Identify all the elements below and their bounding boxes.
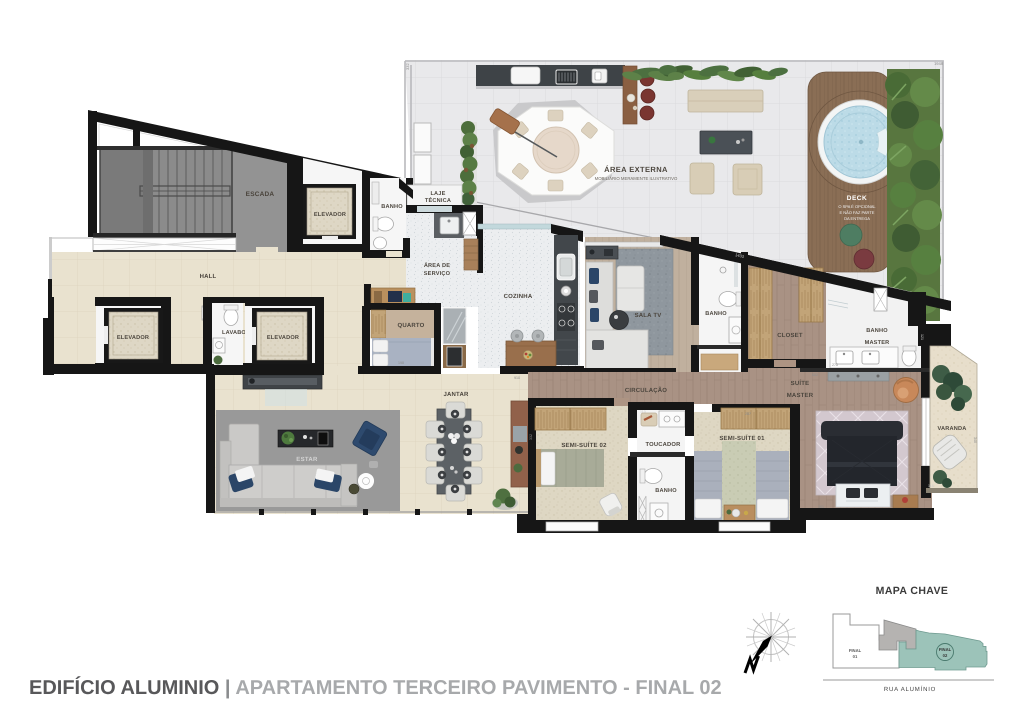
svg-text:602: 602 (812, 373, 818, 377)
svg-text:CLOSET: CLOSET (777, 332, 803, 339)
svg-text:LAVABO: LAVABO (222, 330, 246, 336)
svg-text:QUARTO: QUARTO (397, 322, 424, 329)
svg-text:332: 332 (529, 434, 533, 440)
svg-text:JANTAR: JANTAR (443, 391, 469, 398)
svg-text:ELEVADOR: ELEVADOR (117, 335, 149, 341)
svg-text:E NÃO FAZ PARTE: E NÃO FAZ PARTE (840, 210, 875, 215)
svg-text:SEMI-SUÍTE 01: SEMI-SUÍTE 01 (719, 434, 765, 442)
svg-text:ÁREA EXTERNA: ÁREA EXTERNA (604, 165, 668, 174)
svg-text:910: 910 (514, 376, 520, 380)
svg-text:FINAL: FINAL (849, 648, 862, 653)
svg-text:TÉCNICA: TÉCNICA (425, 197, 451, 204)
svg-text:ESTAR: ESTAR (296, 456, 318, 463)
svg-text:SUÍTE: SUÍTE (791, 379, 810, 387)
svg-text:RUA ALUMÍNIO: RUA ALUMÍNIO (884, 685, 936, 693)
svg-text:278: 278 (832, 363, 838, 367)
svg-text:MASTER: MASTER (787, 392, 814, 399)
svg-text:ELEVADOR: ELEVADOR (314, 212, 346, 218)
svg-text:198: 198 (398, 361, 404, 365)
svg-text:LAJE: LAJE (430, 191, 445, 197)
svg-text:DECK: DECK (847, 195, 867, 202)
svg-text:EDIFÍCIO ALUMINIO | APARTAMENT: EDIFÍCIO ALUMINIO | APARTAMENTO TERCEIRO… (29, 676, 722, 699)
svg-text:BANHO: BANHO (705, 311, 727, 317)
svg-text:ELEVADOR: ELEVADOR (267, 335, 299, 341)
svg-text:121: 121 (920, 334, 924, 340)
svg-text:CIRCULAÇÃO: CIRCULAÇÃO (625, 386, 667, 394)
svg-text:SEMI-SUÍTE 02: SEMI-SUÍTE 02 (561, 441, 607, 449)
svg-text:1948: 1948 (934, 61, 944, 66)
svg-text:MOBILIÁRIO MERAMENTE ILUSTRATI: MOBILIÁRIO MERAMENTE ILUSTRATIVO (595, 176, 678, 181)
svg-text:BANHO: BANHO (866, 328, 888, 334)
svg-text:ESCADA: ESCADA (246, 191, 275, 198)
svg-text:ÁREA DE: ÁREA DE (424, 262, 450, 269)
svg-text:BANHO: BANHO (655, 488, 677, 494)
svg-text:COZINHA: COZINHA (504, 293, 533, 300)
svg-text:SALA TV: SALA TV (635, 312, 662, 319)
svg-text:HALL: HALL (200, 273, 217, 280)
svg-text:FINAL: FINAL (939, 647, 952, 652)
svg-text:02: 02 (943, 653, 948, 658)
svg-text:O SPA É OPCIONAL: O SPA É OPCIONAL (838, 204, 876, 209)
svg-text:287: 287 (745, 412, 751, 416)
svg-text:116: 116 (928, 484, 934, 488)
svg-text:BANHO: BANHO (381, 204, 403, 210)
svg-text:SERVIÇO: SERVIÇO (424, 271, 451, 277)
svg-text:340: 340 (973, 437, 977, 443)
svg-text:VARANDA: VARANDA (938, 426, 967, 432)
svg-text:TOUCADOR: TOUCADOR (646, 441, 682, 448)
svg-text:DA ENTREGA: DA ENTREGA (844, 216, 870, 221)
svg-text:MASTER: MASTER (865, 340, 890, 346)
svg-text:MAPA CHAVE: MAPA CHAVE (876, 585, 949, 597)
svg-text:01: 01 (853, 654, 858, 659)
svg-text:332: 332 (405, 63, 410, 70)
